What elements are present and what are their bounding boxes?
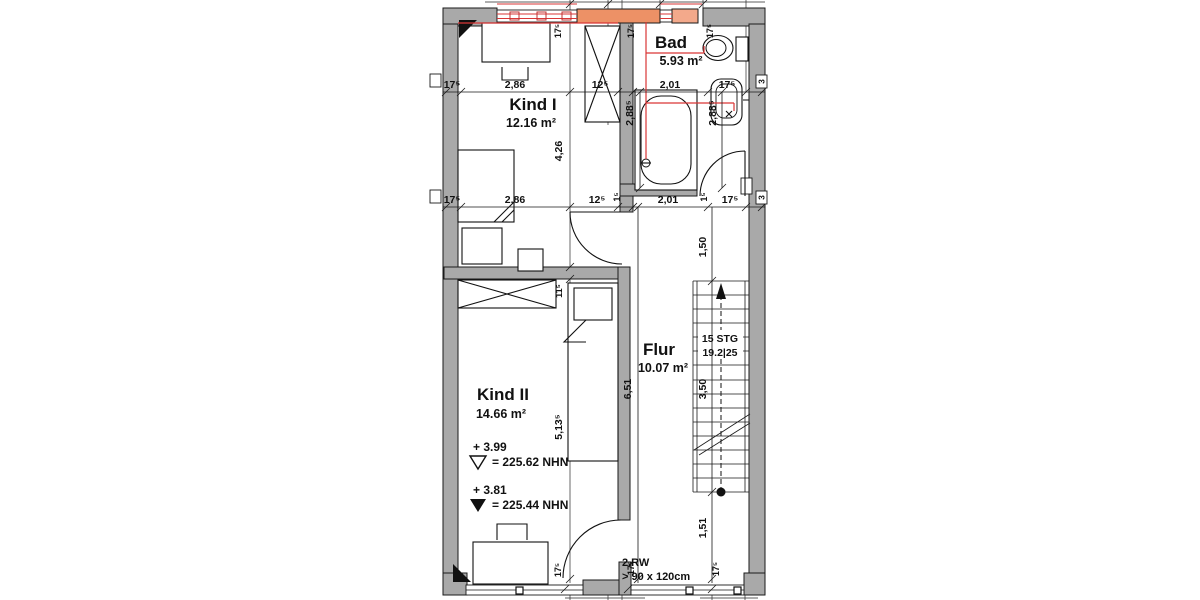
mullion <box>734 587 741 594</box>
dim-wall-top-2: 17⁵ <box>705 24 715 38</box>
dim-row2-2: 12⁵ <box>589 194 606 206</box>
wall-jamb-bottom-horiz <box>583 580 619 595</box>
wall-right <box>749 24 765 585</box>
dim-wall-bottom-2: 17⁵ <box>711 562 721 576</box>
room-area-kind1: 12.16 m² <box>506 116 556 130</box>
wall-niche-right <box>741 178 752 194</box>
pillow-kind2 <box>574 288 612 320</box>
elevation-upper-datum: = 225.62 NHN <box>492 455 568 469</box>
room-name-flur: Flur <box>643 340 675 359</box>
mullion <box>686 587 693 594</box>
dim-wall-top-0: 17⁵ <box>553 24 563 38</box>
bed-kind2-bottom <box>473 542 548 584</box>
axis-box-left-bottom <box>430 190 441 203</box>
dim-v-bad-1: 2,88⁵ <box>707 100 719 125</box>
dim-v-right-1: 3,50 <box>697 379 709 400</box>
door-arc-bad <box>700 151 745 196</box>
dim-row2-4: 2,01 <box>658 194 679 206</box>
stair-ratio-label: 19.2|25 <box>702 347 737 359</box>
nightstand-kind2 <box>497 524 527 540</box>
door-arc-kind1 <box>570 212 622 264</box>
dim-row1-2: 12⁵ <box>592 79 609 91</box>
chair-kind1 <box>518 249 543 271</box>
dim-v-right-0: 1,50 <box>697 237 709 258</box>
dim-row2-1: 2,86 <box>505 194 526 206</box>
bed-kind1-left <box>458 150 514 222</box>
dim-v-flur: 6,51 <box>622 379 634 400</box>
floor-plan-drawing: 15 STG 19.2|25 3 3 Kind I 12.16 m² Bad 5… <box>0 0 1200 600</box>
elevation-lower-triangle <box>470 499 486 512</box>
elevation-upper-value: + 3.99 <box>473 440 507 454</box>
dim-wall-bottom-1: 17⁵ <box>626 561 636 575</box>
corner-triangle-bottom-left <box>453 564 471 582</box>
stair-steps-label: 15 STG <box>702 333 738 345</box>
door-arc-kind2 <box>563 520 621 578</box>
stair-direction-arrow <box>716 283 726 299</box>
dim-row1-3: 2,01 <box>660 79 681 91</box>
wall-left <box>443 24 458 585</box>
dim-row2-5: 1⁵ <box>699 192 709 201</box>
elevation-markers: + 3.99 = 225.62 NHN + 3.81 = 225.44 NHN <box>470 440 568 512</box>
dim-row1-1: 2,86 <box>505 79 526 91</box>
elevation-lower-datum: = 225.44 NHN <box>492 498 568 512</box>
wall-bottom-right-corner <box>744 573 765 595</box>
dim-row1-4: 17⁵ <box>719 79 736 91</box>
wall-top-right <box>703 8 765 26</box>
dim-row2-3: 1⁵ <box>612 192 622 201</box>
axis-label-right-top: 3 <box>757 79 767 84</box>
dim-v-right-2: 1,51 <box>697 518 709 539</box>
dim-v-kind-0: 4,26 <box>553 141 565 162</box>
room-name-kind1: Kind I <box>509 95 556 114</box>
dim-row2-6: 17⁵ <box>722 194 739 206</box>
bed-kind1-top <box>482 23 550 62</box>
stair-start-dot <box>717 488 726 497</box>
dim-v-kind-2: 5,13⁵ <box>553 414 565 439</box>
axis-box-left-top <box>430 74 441 87</box>
dim-wall-bottom-0: 17⁵ <box>553 563 563 577</box>
room-area-kind2: 14.66 m² <box>476 407 526 421</box>
window-top-right <box>660 10 672 22</box>
room-area-bad: 5.93 m² <box>659 54 702 68</box>
stair-cut-line <box>694 414 750 455</box>
toilet-tank <box>736 37 748 61</box>
dim-v-kind-1: 11⁵ <box>554 284 564 298</box>
room-name-kind2: Kind II <box>477 385 529 404</box>
elevation-lower-value: + 3.81 <box>473 483 507 497</box>
elevation-upper-triangle <box>470 456 486 469</box>
room-area-flur: 10.07 m² <box>638 361 688 375</box>
dim-v-bad-0: 2,88⁵ <box>624 100 636 125</box>
desk-kind1 <box>462 228 502 264</box>
highlight-wall-segment-small <box>672 9 698 23</box>
room-name-bad: Bad <box>655 33 687 52</box>
axis-label-right-bottom: 3 <box>757 195 767 200</box>
dim-row1-0: 17⁵ <box>444 79 461 91</box>
dim-wall-top-1: 17⁵ <box>626 24 636 38</box>
dim-row2-0: 17⁵ <box>444 194 461 206</box>
mullion <box>516 587 523 594</box>
highlight-wall-segment <box>577 9 660 23</box>
